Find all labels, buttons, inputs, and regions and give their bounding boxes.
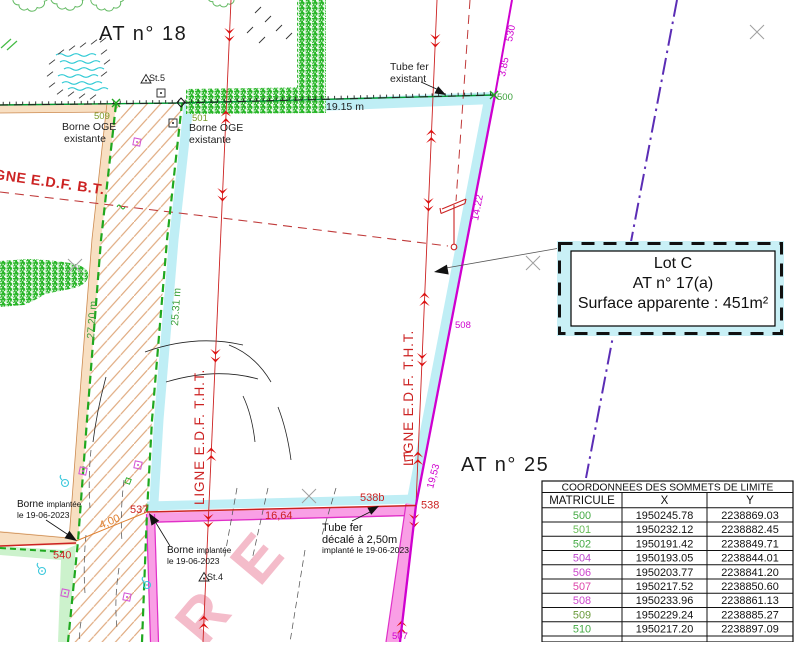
svg-text:1950217.52: 1950217.52 [636,581,694,593]
svg-text:2238897.09: 2238897.09 [721,624,779,636]
svg-text:540: 540 [53,550,71,562]
svg-text:AT n° 25: AT n° 25 [461,454,549,476]
svg-text:502: 502 [573,538,591,550]
svg-text:LIGNE E.D.F. T.H.T.: LIGNE E.D.F. T.H.T. [192,369,207,505]
svg-text:existant: existant [390,73,426,85]
svg-text:2238841.20: 2238841.20 [721,567,779,579]
svg-text:Tube fer: Tube fer [322,522,363,534]
svg-text:Borne OGE: Borne OGE [62,121,116,133]
svg-text:1950191.42: 1950191.42 [636,538,694,550]
svg-text:506: 506 [573,567,591,579]
svg-text:538b: 538b [360,492,384,504]
svg-text:2238869.03: 2238869.03 [721,510,779,522]
svg-text:1950232.12: 1950232.12 [636,524,694,536]
svg-text:St.5: St.5 [149,73,165,83]
svg-text:X: X [661,495,669,507]
svg-text:Borne implantée: Borne implantée [167,545,232,556]
svg-text:500: 500 [573,510,591,522]
svg-text:implanté le 19-06-2023: implanté le 19-06-2023 [322,545,409,555]
svg-text:Tube fer: Tube fer [390,61,429,73]
svg-text:AT n° 17(a): AT n° 17(a) [633,275,714,292]
svg-text:500: 500 [497,92,513,103]
svg-text:538: 538 [421,500,439,512]
svg-text:16,64: 16,64 [265,510,293,522]
svg-text:2238849.71: 2238849.71 [721,538,779,550]
svg-text:2238861.13: 2238861.13 [721,595,779,607]
svg-text:1950245.78: 1950245.78 [636,510,694,522]
svg-text:MATRICULE: MATRICULE [549,495,615,507]
svg-text:existante: existante [64,133,106,145]
svg-text:507: 507 [573,581,591,593]
svg-text:509: 509 [573,610,591,622]
svg-text:2238850.60: 2238850.60 [721,581,779,593]
svg-text:504: 504 [573,553,591,565]
svg-text:Y: Y [746,495,754,507]
svg-text:507: 507 [392,631,408,642]
svg-text:LIGNE E.D.F. T.H.T.: LIGNE E.D.F. T.H.T. [401,330,416,466]
svg-text:AT n° 18: AT n° 18 [99,23,187,45]
svg-text:509: 509 [94,111,110,122]
svg-text:1950233.96: 1950233.96 [636,595,694,607]
svg-text:le 19-06-2023: le 19-06-2023 [17,510,70,520]
svg-text:1950203.77: 1950203.77 [636,567,694,579]
svg-text:Borne implantée: Borne implantée [17,499,82,510]
svg-text:existante: existante [189,134,231,146]
svg-text:St.4: St.4 [207,572,223,582]
svg-text:COORDONNEES DES SOMMETS DE LIM: COORDONNEES DES SOMMETS DE LIMITE [562,483,774,494]
svg-text:1950217.20: 1950217.20 [636,624,694,636]
svg-text:508: 508 [455,320,471,331]
svg-text:le 19-06-2023: le 19-06-2023 [167,556,220,566]
svg-text:508: 508 [573,595,591,607]
svg-text:501: 501 [192,113,208,124]
svg-text:501: 501 [573,524,591,536]
svg-text:2238844.01: 2238844.01 [721,553,779,565]
svg-text:537: 537 [130,504,148,516]
svg-text:510: 510 [573,624,591,636]
svg-text:Lot C: Lot C [654,255,692,272]
svg-text:2238882.45: 2238882.45 [721,524,779,536]
svg-text:2238885.27: 2238885.27 [721,610,779,622]
svg-text:Surface apparente : 451m²: Surface apparente : 451m² [578,295,769,312]
svg-text:19.15 m: 19.15 m [326,101,364,113]
svg-text:1950193.05: 1950193.05 [636,553,694,565]
svg-text:1950229.24: 1950229.24 [636,610,694,622]
